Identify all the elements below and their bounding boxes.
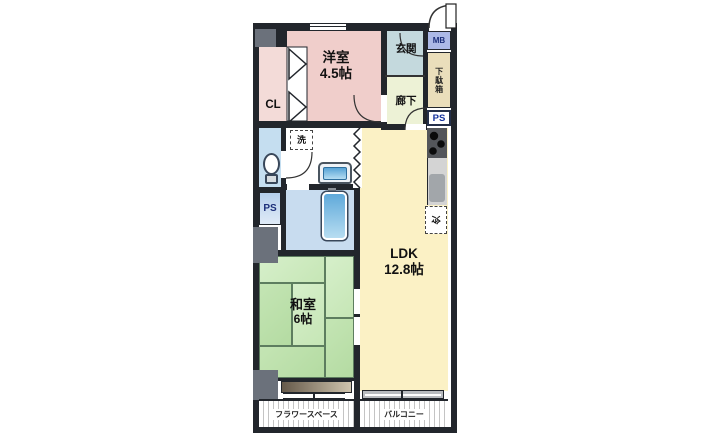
western-room-size: 4.5帖 [291, 66, 381, 82]
balcony-sill [362, 390, 444, 399]
stove [427, 128, 447, 158]
window-western-midline [310, 26, 346, 27]
washing-machine-label: 洗 [297, 135, 306, 145]
western-door-gap [381, 95, 387, 122]
balcony-sill-line [365, 394, 441, 396]
toilet-bowl [263, 153, 280, 175]
wall-yoshitsu-bottom [253, 121, 387, 128]
sliding-door-tick [354, 345, 360, 348]
hallway-name: 廊下 [396, 95, 417, 107]
wall-ldk-left-lower [354, 348, 360, 391]
kitchen-sink [429, 174, 445, 202]
wall-top [253, 23, 457, 31]
toilet-tank [265, 174, 278, 184]
label-entrance: 玄関 [387, 43, 425, 55]
label-closet: CL [259, 99, 287, 112]
label-ldk: LDK 12.8帖 [360, 246, 448, 277]
meter-box: MB [427, 31, 451, 50]
flower-space: フラワースペース [259, 399, 354, 427]
wall-right [451, 23, 457, 433]
flower-space-label: フラワースペース [272, 409, 341, 420]
shoe-cabinet-label: 下駄箱 [434, 67, 443, 94]
wood-ledge [281, 381, 352, 393]
japanese-room-name: 和室 [268, 298, 338, 313]
label-hallway: 廊下 [388, 95, 424, 107]
refrigerator-box: 冷 [425, 206, 447, 234]
sliding-door-gap [354, 286, 360, 348]
floor-plan: MB 下駄箱 PS PS 冷 洗 フラワースペース バルコニー [0, 0, 720, 446]
balcony-label: バルコニー [381, 409, 427, 420]
sliding-door-tick [354, 286, 360, 289]
pipe-space-right-label: PS [433, 113, 446, 124]
wall-filler-topleft [276, 31, 287, 47]
washing-machine-box: 洗 [290, 130, 313, 150]
entrance-name: 玄関 [396, 43, 417, 55]
bathtub [322, 192, 347, 240]
shoe-cabinet: 下駄箱 [427, 52, 451, 108]
balcony: バルコニー [360, 399, 448, 427]
refrigerator-label: 冷 [431, 215, 441, 224]
hallway-door-gap [405, 124, 426, 130]
balcony-sill-tick [401, 390, 403, 399]
pillar-bottom-left [253, 370, 278, 400]
wash-basin [318, 162, 352, 184]
entrance-door-gap [429, 23, 451, 31]
closet-name: CL [265, 99, 280, 111]
label-western-room: 洋室 4.5帖 [291, 50, 381, 81]
washroom-door-gap [281, 151, 286, 178]
window-western-top [310, 24, 346, 30]
pipe-space-right: PS [427, 110, 451, 126]
pillar-mid-left [253, 227, 278, 263]
bathroom-door-gap [287, 184, 309, 190]
wash-basin-bowl [323, 167, 347, 180]
pipe-space-left: PS [259, 192, 281, 225]
western-room-name: 洋室 [291, 50, 381, 66]
pillar-top-left [255, 29, 276, 47]
accordion-slot [353, 128, 362, 188]
label-japanese-room: 和室 6帖 [268, 298, 338, 327]
japanese-room-size: 6帖 [268, 313, 338, 327]
meter-box-label: MB [433, 36, 445, 45]
sliding-door-tick [354, 314, 360, 317]
ldk-name: LDK [360, 246, 448, 262]
entrance-step-line [385, 75, 425, 77]
tatami-mat [325, 318, 354, 378]
pipe-space-left-label: PS [263, 203, 276, 214]
ldk-size: 12.8帖 [360, 262, 448, 278]
